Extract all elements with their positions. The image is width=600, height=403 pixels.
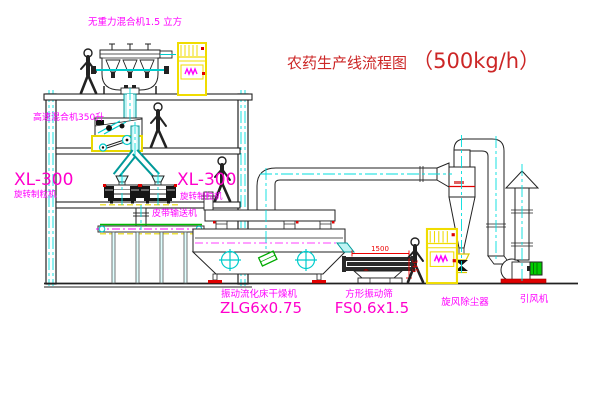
label-belt-conveyor: 皮带输送机: [152, 207, 197, 219]
floor-slab-2: [56, 148, 240, 154]
control-cabinet-upper: [178, 43, 206, 95]
label-granulator-left-name: 旋转制粒机: [14, 189, 57, 200]
control-cabinet-ground: [427, 229, 457, 283]
floor-slab-top: [44, 94, 252, 100]
label-dryer-model: ZLG6x0.75: [220, 299, 302, 317]
induced-draft-fan: [501, 259, 546, 283]
process-flow-diagram: 农药生产线流程图 （500kg/h） 无重力混合机1.5 立方 高速混合机350…: [0, 0, 600, 403]
fan-motor: [530, 262, 542, 275]
label-fan: 引风机: [520, 293, 549, 305]
dimension-screen-length: 1500: [371, 245, 389, 253]
label-screen-model: FS0.6x1.5: [335, 299, 409, 317]
label-cyclone: 旋风除尘器: [441, 296, 489, 308]
diagram-canvas: 农药生产线流程图 （500kg/h） 无重力混合机1.5 立方 高速混合机350…: [0, 0, 600, 403]
dimension-screen-height: 345: [411, 259, 419, 272]
label-gravity-free-mixer: 无重力混合机1.5 立方: [88, 16, 182, 28]
label-granulator-left-model: XL-300: [14, 170, 73, 190]
label-high-speed-mixer: 高速混合机350升: [33, 111, 104, 123]
label-granulator-right-name: 旋转制粒机: [180, 191, 223, 202]
label-granulator-right-model: XL-300: [177, 170, 236, 190]
